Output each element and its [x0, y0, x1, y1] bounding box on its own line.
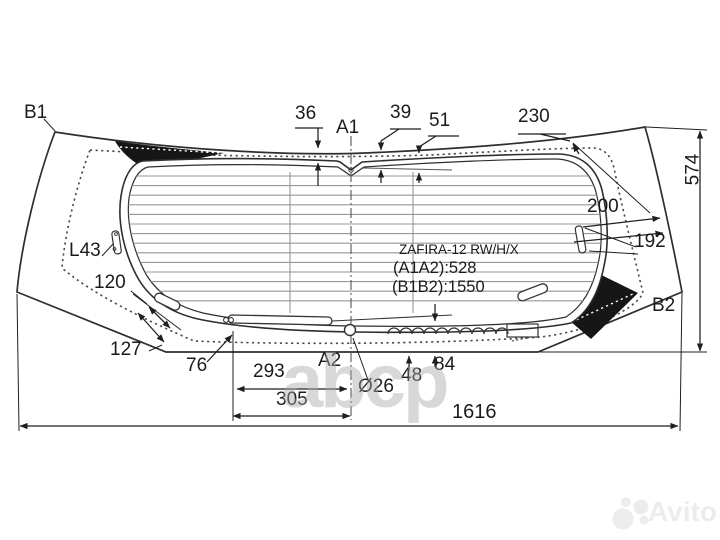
dim-36-label: 36: [295, 104, 316, 123]
tailgate-glass-diagram: [0, 0, 720, 540]
diagram-page: B1 36 A1 39 51 230 574 200 192 B2 L43 12…: [0, 0, 720, 540]
dim-39-label: 39: [390, 103, 411, 122]
ghost-watermark: abcp: [281, 344, 446, 420]
avito-logo-icon: [610, 494, 650, 534]
clip-l43: [111, 231, 121, 255]
wiper-hole: [345, 325, 356, 336]
connector-dotted: [512, 338, 527, 341]
dim-l43-label: L43: [69, 241, 101, 260]
dim-574-label: 574: [684, 140, 703, 200]
model-code-text: ZAFIRA-12 RW/H/X: [399, 243, 519, 257]
dim-192-label: 192: [634, 232, 666, 251]
dim-120-label: 120: [94, 273, 126, 292]
dim-293-label: 293: [253, 362, 285, 381]
a-span-text: (A1A2):528: [393, 260, 476, 277]
dim-230-label: 230: [518, 107, 550, 126]
marker-b2-label: B2: [652, 296, 675, 315]
avito-watermark-text: Avito: [648, 498, 717, 526]
dim-76-label: 76: [186, 356, 207, 375]
marker-b1-label: B1: [24, 103, 47, 122]
b-span-text: (B1B2):1550: [392, 279, 485, 296]
dim-200-label: 200: [587, 197, 619, 216]
dim-127-label: 127: [110, 340, 142, 359]
dim-51-label: 51: [429, 111, 450, 130]
marker-a1-label: A1: [336, 118, 359, 137]
dim-1616-label: 1616: [452, 402, 497, 422]
